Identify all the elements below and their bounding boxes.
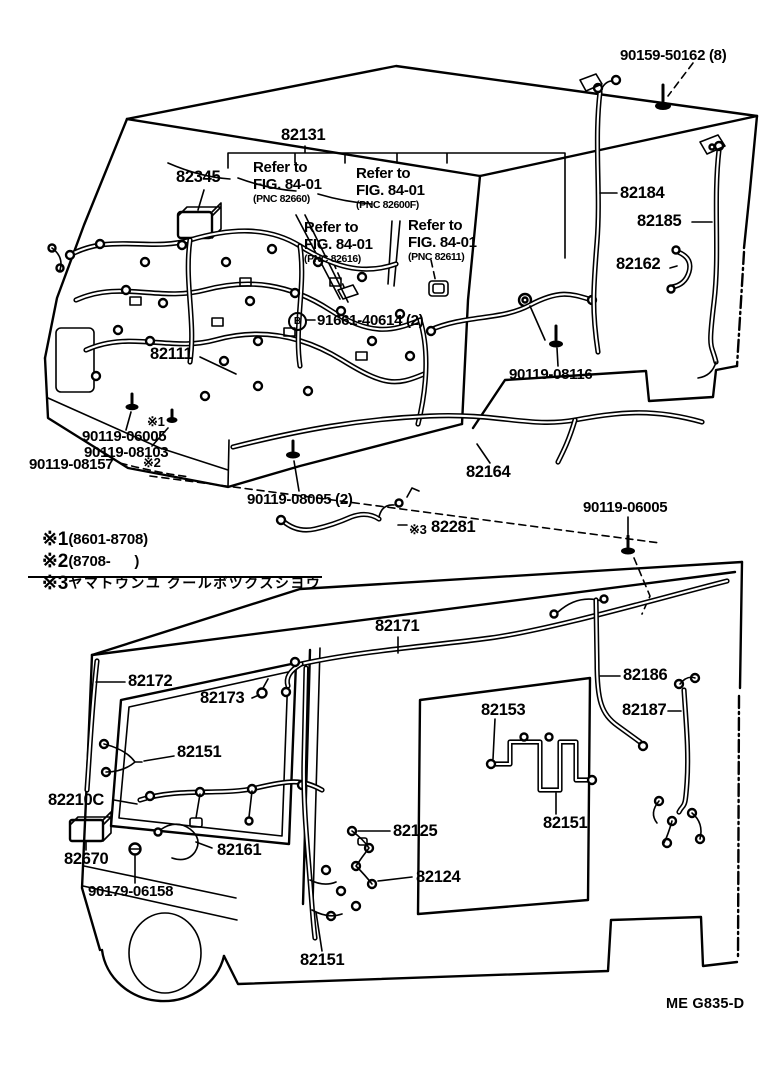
part-label-90119-08116: 90119-08116 [509,367,592,382]
note-marker-1: ※1 [147,415,165,428]
part-label-90159-50162: 90159-50162 (8) [620,48,726,63]
refer-note-pnc82600f: Refer to FIG. 84-01 (PNC 82600F) [356,166,425,211]
part-label-82172: 82172 [128,673,172,690]
part-label-82345: 82345 [176,169,220,186]
part-label-82153: 82153 [481,702,525,719]
part-label-82670: 82670 [64,851,108,868]
bolt-icon-50162 [655,63,693,110]
part-label-82164: 82164 [466,464,510,481]
part-label-90119-08157: 90119-08157 [29,457,113,472]
part-label-82162: 82162 [616,256,660,273]
part-label-82151-c: 82151 [300,952,344,969]
bolt-icon-06005 [621,517,650,614]
part-label-82111: 82111 [150,346,193,363]
refer-note-pnc82616: Refer to FIG. 84-01 (PNC 82616) [304,220,373,265]
part-label-82187: 82187 [622,702,666,719]
part-label-82131: 82131 [281,127,325,144]
part-label-82171: 82171 [375,618,419,635]
part-label-82281: 82281 [431,519,475,536]
part-label-82151-a: 82151 [177,744,221,761]
bolt-icon-08116 [549,326,563,366]
part-label-90179-06158: 90179-06158 [88,884,173,899]
part-label-90119-08005: 90119-08005 (2) [247,492,353,507]
circled-b-marker: B [288,312,307,331]
part-label-82173: 82173 [200,690,244,707]
legend-underline [28,576,322,578]
part-label-82124: 82124 [416,869,460,886]
note-marker-3-inline: ※3 [409,523,427,536]
part-label-82151-b: 82151 [543,815,587,832]
part-label-90119-06005-a: 90119-06005 [82,429,166,444]
part-label-82186: 82186 [623,667,667,684]
relay-82670 [70,812,111,850]
legend-row-3: ※3ヤマトウンユ クールボツクスシヨウ [33,554,321,595]
part-label-82210c: 82210C [48,792,104,809]
relay-82345 [178,190,221,238]
refer-note-pnc82611: Refer to FIG. 84-01 (PNC 82611) [408,218,477,263]
part-label-82161: 82161 [217,842,261,859]
part-label-82185: 82185 [637,213,681,230]
parts-diagram-page: 90159-50162 (8) 82131 82345 Refer to FIG… [0,0,784,1078]
note-marker-2: ※2 [143,456,161,469]
part-label-82184: 82184 [620,185,664,202]
part-label-91661-40614: 91661-40614 (2) [317,313,423,328]
refer-note-pnc82660: Refer to FIG. 84-01 (PNC 82660) [253,160,322,205]
part-label-90119-06005-b: 90119-06005 [583,500,667,515]
figure-code: ME G835-D [666,996,744,1012]
upper-truck-drawing [45,63,757,614]
part-label-82125: 82125 [393,823,437,840]
